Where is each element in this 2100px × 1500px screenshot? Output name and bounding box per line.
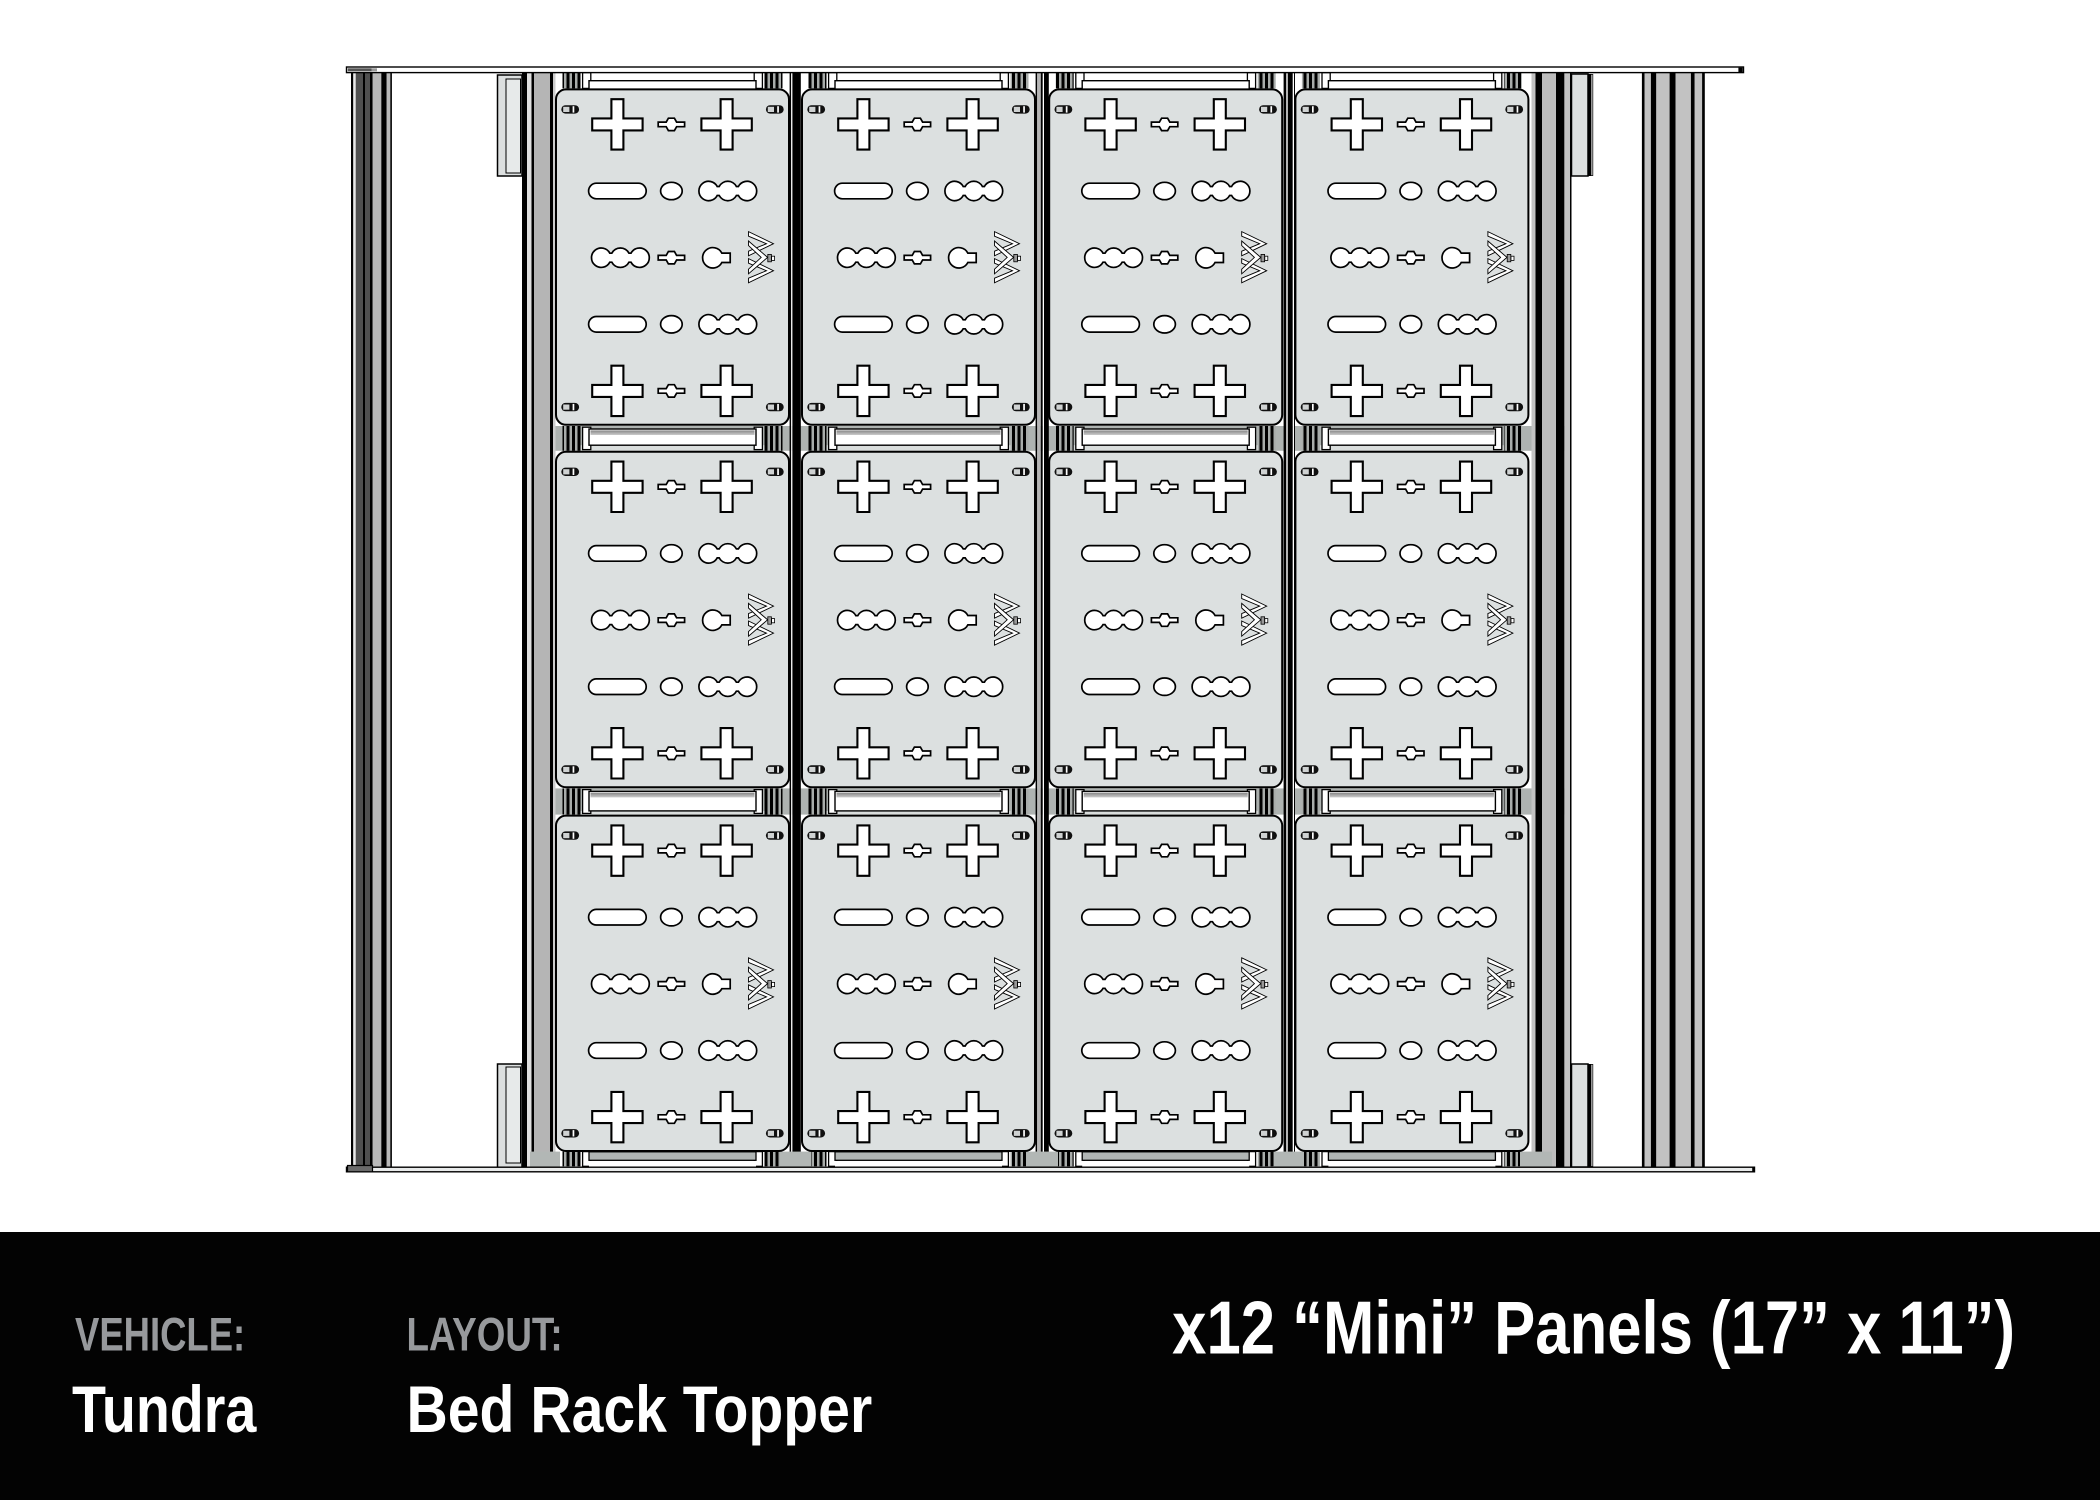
svg-text:Tundra: Tundra [72,1373,257,1447]
svg-text:Bed Rack Topper: Bed Rack Topper [407,1373,873,1447]
svg-text:x12 “Mini” Panels (17” x 11”): x12 “Mini” Panels (17” x 11”) [1172,1286,2015,1370]
svg-text:VEHICLE:: VEHICLE: [75,1308,245,1361]
svg-text:LAYOUT:: LAYOUT: [407,1309,563,1362]
